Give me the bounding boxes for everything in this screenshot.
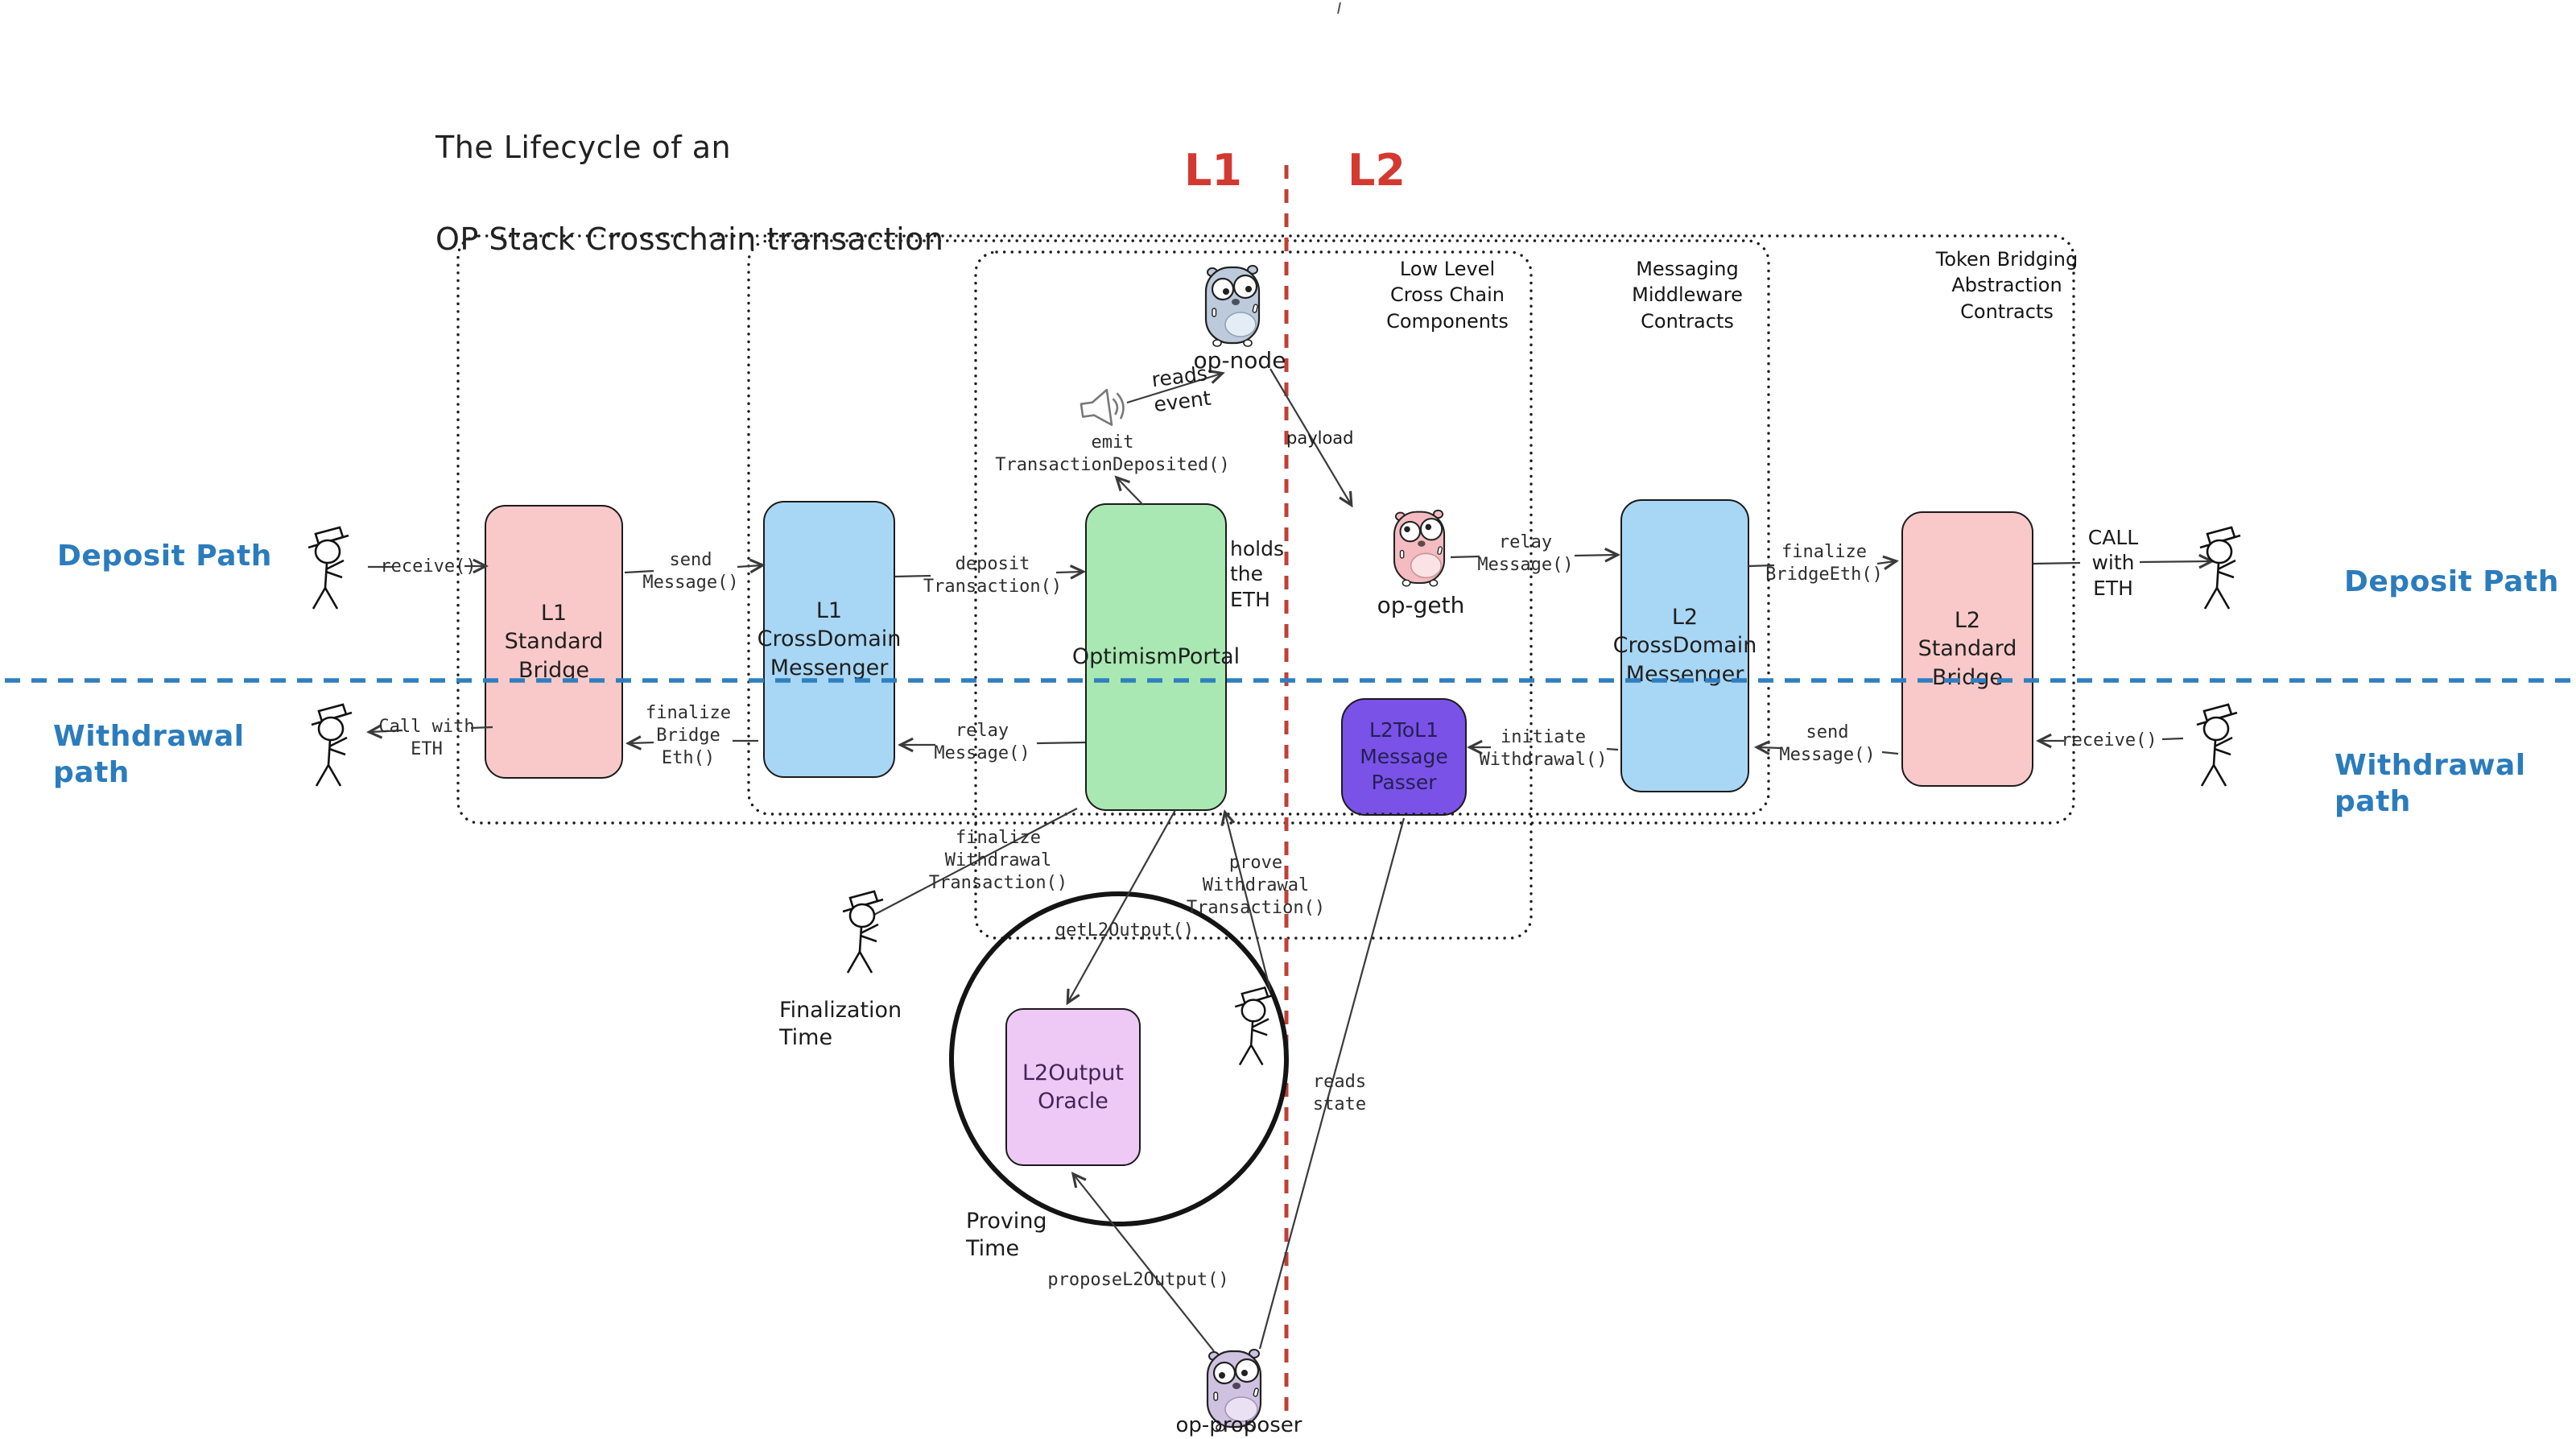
arrow-emit-transaction-deposited: [1117, 478, 1143, 505]
reads-state-label: reads state: [1294, 1071, 1385, 1116]
megaphone-icon: [1080, 388, 1125, 429]
op-node-gopher: [1206, 266, 1259, 346]
user-figure-withdrawal-left: [312, 705, 352, 786]
receive-deposit-label: receive(): [372, 556, 485, 578]
group-messaging-label: Messaging Middleware Contracts: [1607, 256, 1768, 334]
emit-transaction-deposited-label: emit TransactionDeposited(): [984, 432, 1241, 477]
top-tick-mark: [1338, 2, 1340, 14]
op-node-label: op-node: [1171, 346, 1308, 374]
user-figure-finalizer: [843, 891, 883, 973]
op-geth-label: op-geth: [1352, 591, 1489, 619]
proving-time-label: Proving Time: [966, 1208, 1079, 1263]
receive-withdrawal-label: receive(): [2053, 730, 2165, 752]
deposit-transaction-label: deposit Transaction(): [904, 553, 1081, 598]
group-token-bridging-label: Token Bridging Abstraction Contracts: [1914, 246, 2099, 325]
user-figure-deposit-right: [2200, 527, 2240, 609]
deposit-path-label-right: Deposit Path: [2344, 564, 2576, 600]
user-figure-withdrawal-right: [2197, 705, 2237, 786]
call-with-eth-left-label: Call with ETH: [366, 716, 487, 761]
payload-label: payload: [1286, 428, 1351, 449]
send-message-deposit-label: send Message(): [626, 549, 755, 594]
op-proposer-label: op-proposer: [1162, 1412, 1315, 1439]
l2-standard-bridge-box: L2 Standard Bridge: [1901, 511, 2033, 787]
call-with-eth-right-label: CALL with ETH: [2073, 525, 2153, 601]
deposit-path-label-left: Deposit Path: [57, 538, 299, 574]
withdrawal-path-label-left: Withdrawal path: [53, 718, 311, 791]
user-figure-prover: [1235, 987, 1274, 1065]
finalize-bridge-eth-label: finalize Bridge Eth(): [624, 702, 753, 770]
finalize-withdrawal-transaction-label: finalize Withdrawal Transaction(): [910, 827, 1087, 895]
l1-layer-label: L1: [1169, 143, 1257, 198]
finalize-bridgeeth-label: finalize BridgeEth(): [1752, 541, 1897, 586]
propose-l2-output-label: proposeL2Output(): [1046, 1269, 1230, 1292]
get-l2-output-label: getL2Output(): [1054, 920, 1195, 942]
send-message-withdrawal-label: send Message(): [1763, 722, 1892, 767]
diagram-title-line1: The Lifecycle of an: [436, 125, 1080, 171]
optimism-portal-box: OptimismPortal: [1085, 503, 1227, 811]
withdrawal-path-label-right: Withdrawal path: [2334, 747, 2576, 820]
prove-withdrawal-transaction-label: prove Withdrawal Transaction(): [1167, 852, 1344, 920]
diagram-canvas: The Lifecycle of an OP Stack Crosschain …: [0, 0, 2576, 1439]
finalization-time-label: Finalization Time: [779, 997, 916, 1052]
holds-the-eth-label: holds the ETH: [1230, 536, 1311, 612]
arrow-propose-l2-output: [1074, 1175, 1214, 1351]
l2-layer-label: L2: [1332, 143, 1421, 198]
l1-crossdomain-messenger-box: L1 CrossDomain Messenger: [763, 501, 895, 778]
relay-message-withdrawal-label: relay Message(): [918, 720, 1046, 765]
relay-message-deposit-label: relay Message(): [1461, 531, 1590, 577]
user-figure-deposit-left: [308, 527, 349, 609]
diagram-title: The Lifecycle of an OP Stack Crosschain …: [436, 79, 1080, 308]
group-low-level-label: Low Level Cross Chain Components: [1367, 256, 1528, 334]
op-geth-gopher: [1394, 511, 1444, 586]
diagram-title-line2: OP Stack Crosschain transaction: [436, 217, 1080, 263]
initiate-withdrawal-label: initiate Withdrawal(): [1471, 726, 1616, 771]
l2tol1-message-passer-box: L2ToL1 Message Passer: [1341, 698, 1467, 816]
l2-crossdomain-messenger-box: L2 CrossDomain Messenger: [1620, 499, 1749, 792]
l1-standard-bridge-box: L1 Standard Bridge: [485, 505, 623, 779]
l2output-oracle-box: L2Output Oracle: [1005, 1008, 1141, 1166]
